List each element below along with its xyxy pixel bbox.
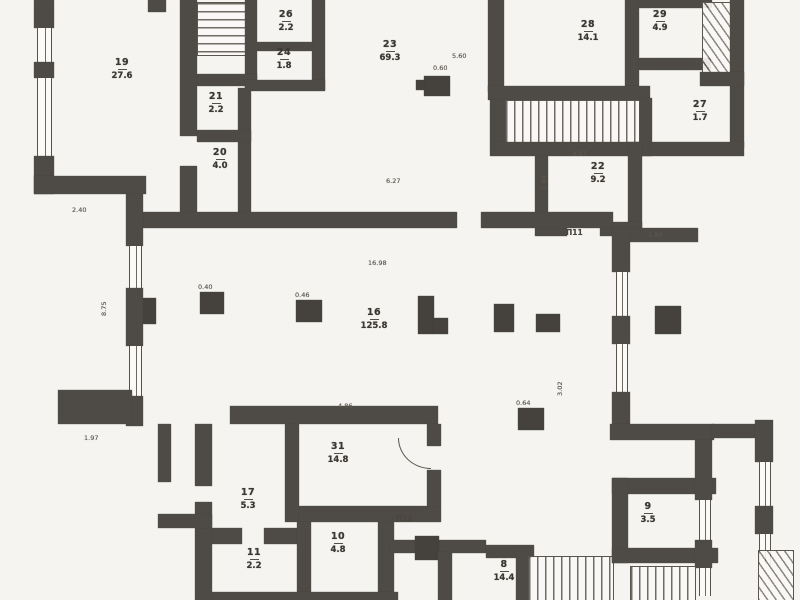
wall <box>126 288 143 346</box>
room-area: 4.8 <box>318 546 358 555</box>
room-number: 21 <box>196 92 236 102</box>
wall <box>212 592 398 600</box>
staircase-hatch <box>758 550 794 600</box>
wall <box>612 316 630 344</box>
window <box>129 346 142 396</box>
wall <box>490 142 650 156</box>
wall <box>612 228 630 272</box>
room-area: 1.7 <box>680 114 720 123</box>
column <box>143 298 156 324</box>
room-number: 17 <box>228 488 268 498</box>
column <box>415 536 439 560</box>
wall <box>312 0 325 90</box>
column <box>655 306 681 334</box>
wall <box>490 100 505 142</box>
staircase-hatch <box>702 2 732 76</box>
room-22-label: 22 9.2 <box>578 162 618 185</box>
dimension-label: 3.02 <box>556 382 564 396</box>
room-20-label: 20 4.0 <box>200 148 240 171</box>
wall <box>612 392 630 426</box>
room-27-label: 27 1.7 <box>680 100 720 123</box>
wall <box>180 0 197 136</box>
room-26-label: 26 2.2 <box>268 10 304 33</box>
dimension-label: 5.60 <box>452 52 466 60</box>
wall <box>712 424 760 438</box>
door-arc <box>398 438 431 469</box>
wall <box>378 522 394 600</box>
column <box>200 292 224 314</box>
room-number: 10 <box>318 532 358 542</box>
wall <box>427 470 441 506</box>
room-number: 20 <box>200 148 240 158</box>
window <box>699 500 711 540</box>
room-area: 27.6 <box>100 72 144 81</box>
room-area: 2.2 <box>268 24 304 33</box>
room-area: 14.1 <box>566 34 610 43</box>
staircase-hatch <box>630 566 696 600</box>
wall <box>438 552 452 600</box>
wall <box>158 424 171 482</box>
dimension-label: 0.40 <box>198 283 212 291</box>
stair-label-p12: П12 <box>396 514 413 523</box>
wall <box>34 62 54 78</box>
wall <box>230 406 438 424</box>
room-area: 4.9 <box>642 24 678 33</box>
wall <box>755 420 773 462</box>
dimension-label: 2.40 <box>72 206 86 214</box>
room-area: 9.2 <box>578 176 618 185</box>
wall <box>488 86 650 100</box>
window <box>37 78 52 156</box>
dimension-label: 6.27 <box>386 177 400 185</box>
room-28-label: 28 14.1 <box>566 20 610 43</box>
wall <box>650 142 744 156</box>
room-area: 125.8 <box>350 322 398 331</box>
room-16-label: 16 125.8 <box>350 308 398 331</box>
wall <box>755 506 773 534</box>
column <box>518 408 544 430</box>
wall <box>695 440 712 500</box>
room-number: 11 <box>236 548 272 558</box>
room-number: 29 <box>642 10 678 20</box>
room-number: 19 <box>100 58 144 68</box>
room-area: 14.8 <box>318 456 358 465</box>
room-area: 4.0 <box>200 162 240 171</box>
wall <box>695 540 712 568</box>
room-24-label: 24 1.8 <box>266 48 302 71</box>
wall <box>158 514 212 528</box>
staircase-hatch <box>528 556 614 600</box>
dimension-label: 1.97 <box>84 434 98 442</box>
room-8-label: 8 14.4 <box>486 560 522 583</box>
wall <box>34 0 54 28</box>
dimension-label: 3.97 <box>572 150 586 158</box>
window <box>759 462 771 506</box>
room-area: 2.2 <box>236 562 272 571</box>
wall <box>143 212 457 228</box>
room-number: 9 <box>628 502 668 512</box>
room-number: 16 <box>350 308 398 318</box>
wall <box>610 424 714 440</box>
room-17-label: 17 5.3 <box>228 488 268 511</box>
room-number: 26 <box>268 10 304 20</box>
wall <box>197 130 251 142</box>
room-area: 3.5 <box>628 516 668 525</box>
room-21-label: 21 2.2 <box>196 92 236 115</box>
room-11-label: 11 2.2 <box>236 548 272 571</box>
wall <box>630 228 698 242</box>
dimension-label: 8.75 <box>100 302 108 316</box>
floor-plan: 19 27.6 26 2.2 24 1.8 21 2.2 20 4.0 23 6… <box>0 0 800 600</box>
wall <box>180 166 197 214</box>
window <box>699 568 711 596</box>
room-10-label: 10 4.8 <box>318 532 358 555</box>
wall <box>58 390 132 424</box>
stair-label-p11: П11 <box>566 228 583 237</box>
wall <box>700 72 744 86</box>
window <box>37 28 52 62</box>
room-number: 31 <box>318 442 358 452</box>
column <box>416 80 424 90</box>
column <box>536 314 560 332</box>
dimension-label: 4.86 <box>338 402 352 410</box>
room-29-label: 29 4.9 <box>642 10 678 33</box>
room-number: 23 <box>368 40 412 50</box>
room-9-label: 9 3.5 <box>628 502 668 525</box>
window <box>616 272 628 316</box>
dimension-label: 16.98 <box>368 259 387 267</box>
column <box>418 296 434 334</box>
room-area: 2.2 <box>196 106 236 115</box>
wall <box>297 522 311 600</box>
room-number: 28 <box>566 20 610 30</box>
room-number: 27 <box>680 100 720 110</box>
room-area: 1.8 <box>266 62 302 71</box>
dimension-label: 0.60 <box>433 64 447 72</box>
column <box>434 318 448 334</box>
room-number: 8 <box>486 560 522 570</box>
dimension-label: 1.84 <box>648 231 662 239</box>
wall <box>34 176 146 194</box>
wall <box>481 212 613 228</box>
column <box>296 300 322 322</box>
room-31-label: 31 14.8 <box>318 442 358 465</box>
column <box>424 76 450 96</box>
staircase-hatch <box>197 2 247 56</box>
room-23-label: 23 69.3 <box>368 40 412 63</box>
room-19-label: 19 27.6 <box>100 58 144 81</box>
room-area: 5.3 <box>228 502 268 511</box>
wall <box>639 58 711 70</box>
room-number: 22 <box>578 162 618 172</box>
wall <box>488 0 504 92</box>
room-area: 69.3 <box>368 54 412 63</box>
wall <box>195 424 212 486</box>
window <box>129 246 142 288</box>
wall <box>245 80 325 91</box>
room-area: 14.4 <box>486 574 522 583</box>
wall <box>148 0 166 12</box>
window <box>616 344 628 392</box>
room-number: 24 <box>266 48 302 58</box>
wall <box>285 424 299 522</box>
dimension-label: 0.46 <box>295 291 309 299</box>
wall <box>625 0 639 90</box>
dimension-label: 1.04 <box>540 176 548 190</box>
dimension-label: 0.64 <box>516 399 530 407</box>
column <box>494 304 514 332</box>
wall <box>299 506 441 522</box>
staircase-hatch <box>505 100 640 144</box>
wall <box>212 528 242 544</box>
wall <box>126 194 143 246</box>
